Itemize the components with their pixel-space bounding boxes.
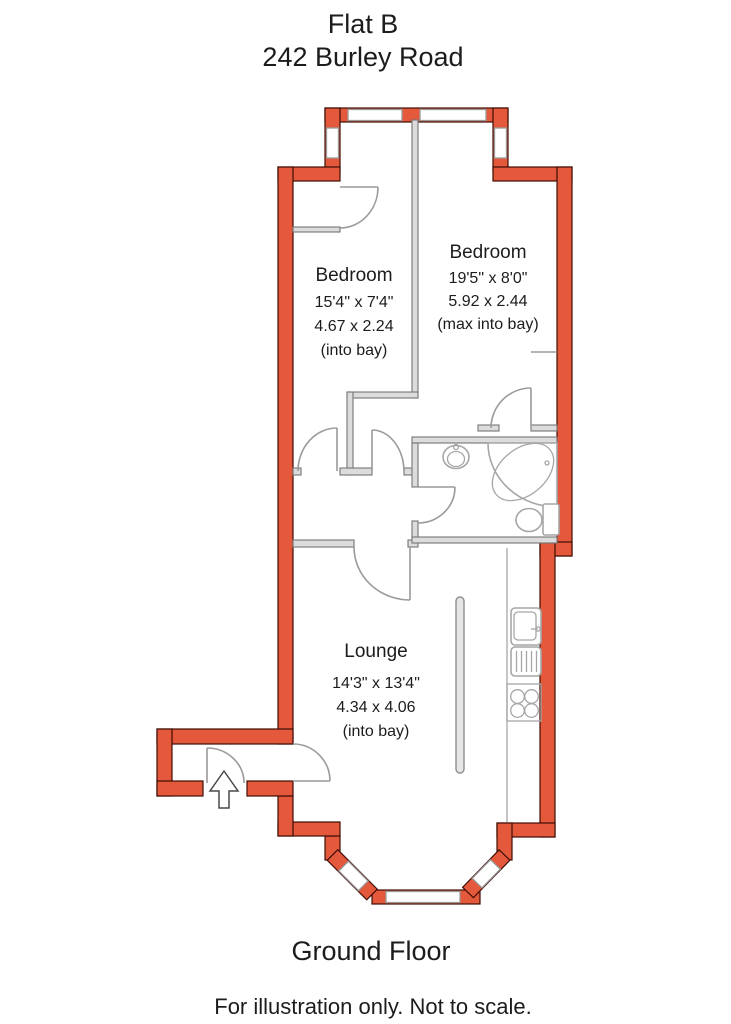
floorplan-drawing (0, 0, 731, 1024)
basin-icon (443, 445, 469, 469)
door-entrance (293, 744, 330, 781)
room-label-bedroom2: Bedroom 19'5" x 8'0" 5.92 x 2.44 (max in… (437, 241, 538, 336)
floor-label: Ground Floor (291, 936, 450, 967)
bathroom-fixtures (443, 432, 565, 535)
room-label-bedroom1: Bedroom 15'4" x 7'4" 4.67 x 2.24 (into b… (314, 264, 393, 363)
door-bathroom (418, 487, 455, 523)
room-dim-metric: 4.67 x 2.24 (314, 315, 393, 339)
title-line2: 242 Burley Road (262, 41, 463, 74)
room-note: (into bay) (314, 339, 393, 363)
window-icon (348, 110, 402, 121)
room-name: Lounge (332, 640, 420, 664)
page-title: Flat B 242 Burley Road (262, 8, 463, 74)
room-name: Bedroom (437, 241, 538, 264)
room-note: (max into bay) (437, 313, 538, 336)
entrance-arrow-icon (210, 771, 238, 808)
room-dim-metric: 5.92 x 2.44 (437, 290, 538, 313)
room-dim-imperial: 19'5" x 8'0" (437, 267, 538, 290)
window-icon (327, 128, 339, 158)
kitchen-fixtures (507, 548, 541, 822)
kitchen-sink-icon (511, 608, 541, 676)
window-icon (420, 110, 486, 121)
door-hall-corridor (372, 430, 404, 472)
door-bedroom1 (298, 428, 337, 471)
door-bedroom2 (491, 388, 531, 428)
room-dim-imperial: 15'4" x 7'4" (314, 291, 393, 315)
room-note: (into bay) (332, 720, 420, 744)
room-dim-metric: 4.34 x 4.06 (332, 696, 420, 720)
window-icon (339, 861, 368, 890)
title-line1: Flat B (262, 8, 463, 41)
floorplan-page: Flat B 242 Burley Road Bedroom 15'4" x 7… (0, 0, 731, 1024)
door-lounge (354, 547, 410, 600)
room-dim-imperial: 14'3" x 13'4" (332, 672, 420, 696)
window-icon (495, 128, 507, 158)
window-icon (386, 892, 460, 903)
bath-icon (481, 432, 564, 512)
disclaimer-text: For illustration only. Not to scale. (214, 994, 532, 1020)
toilet-icon (516, 504, 559, 535)
door-bedroom1-closet (340, 187, 378, 228)
room-label-lounge: Lounge 14'3" x 13'4" 4.34 x 4.06 (into b… (332, 640, 420, 744)
room-name: Bedroom (314, 264, 393, 288)
hob-icon (507, 684, 541, 721)
lounge-partition-bar (456, 597, 464, 773)
